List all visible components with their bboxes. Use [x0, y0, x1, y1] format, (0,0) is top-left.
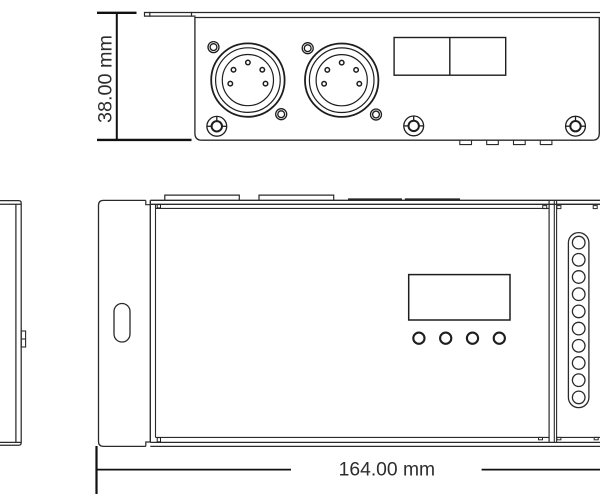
- svg-text:164.00 mm: 164.00 mm: [339, 460, 435, 481]
- svg-text:38.00 mm: 38.00 mm: [95, 35, 117, 123]
